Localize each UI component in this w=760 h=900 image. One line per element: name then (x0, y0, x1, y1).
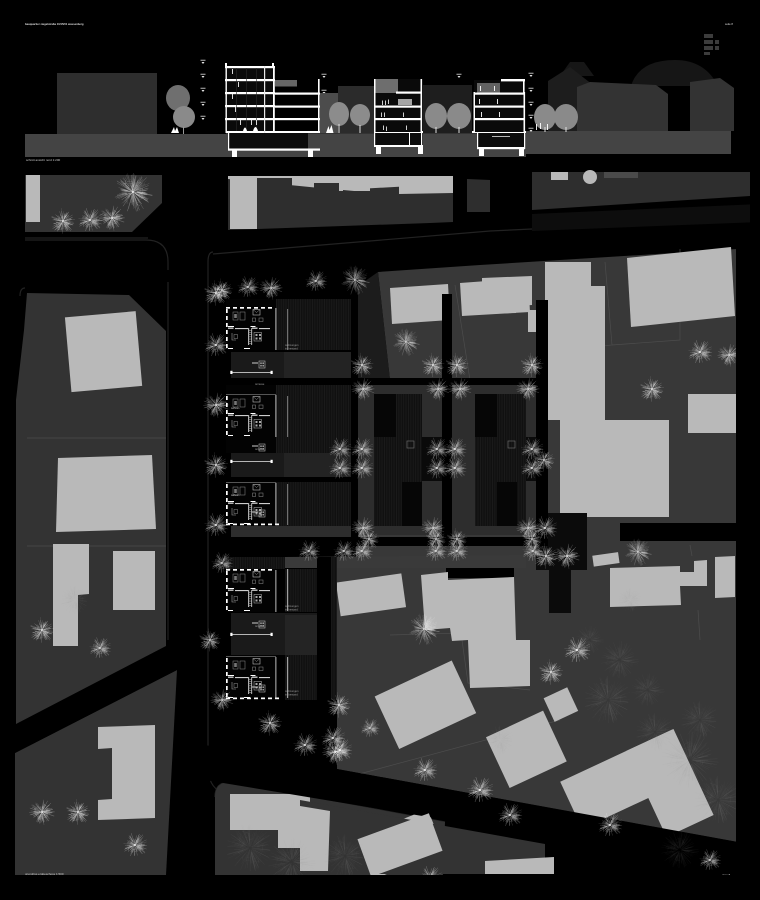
svg-text:wohnen: wohnen (231, 494, 240, 497)
svg-text:schnitt ansicht nord 1:200: schnitt ansicht nord 1:200 (26, 158, 61, 162)
svg-text:terrasse: terrasse (255, 624, 265, 628)
svg-text:wohnen: wohnen (231, 407, 240, 410)
svg-text:im bestand: im bestand (285, 608, 298, 612)
svg-text:im bestand: im bestand (285, 693, 298, 697)
svg-text:terrasse: terrasse (255, 382, 265, 386)
svg-text:terrasse: terrasse (255, 447, 265, 451)
svg-text:seite 8: seite 8 (725, 22, 733, 26)
svg-text:wohnungen: wohnungen (285, 343, 299, 347)
svg-text:wohnungen: wohnungen (285, 689, 299, 693)
svg-text:im bestand: im bestand (285, 347, 298, 351)
svg-text:wohnungen: wohnungen (285, 604, 299, 608)
svg-text:bauquartier ziegelstraße 10/15: bauquartier ziegelstraße 10/15/01 wassen… (25, 22, 84, 26)
